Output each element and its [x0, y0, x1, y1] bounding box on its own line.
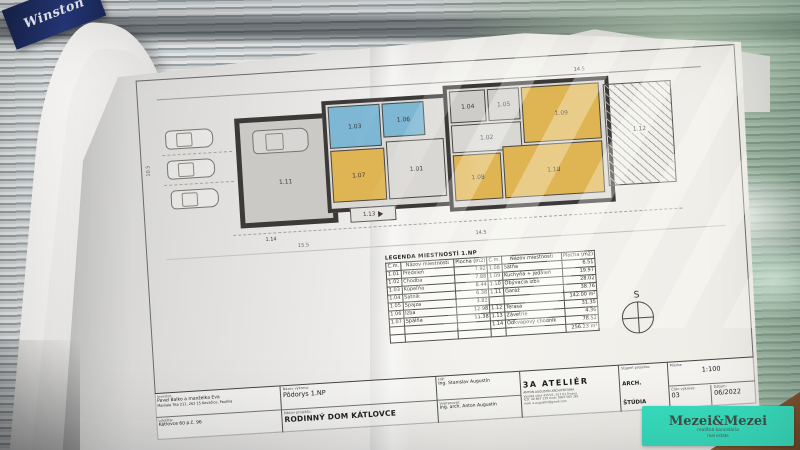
legend-cell	[390, 334, 405, 343]
legend-cell	[491, 328, 506, 337]
photo-scene: Winston 14.5 10.5 1.11	[0, 0, 800, 450]
car-icon	[252, 127, 309, 154]
watermark-subtitle: real estate	[707, 433, 728, 438]
car-icon	[170, 188, 219, 210]
drawing-date: 06/2022	[714, 386, 752, 396]
title-block-people: HIP: Ing. Stanislav Augustín Vypracoval:…	[435, 372, 522, 423]
legend-cell	[458, 329, 491, 339]
dimension-label: 10.5	[145, 165, 152, 176]
title-block-stage: Stupeň projektu: ARCH. ŠTÚDIA	[618, 363, 669, 412]
room-label: 1.14	[265, 236, 276, 243]
corner-shadow	[0, 340, 80, 450]
drawing-number: 03	[671, 389, 709, 399]
room-label: 1.11	[279, 178, 293, 186]
cigarette-pack-label: Winston	[22, 0, 87, 31]
car-icon	[165, 128, 214, 150]
watermark-badge: Mezei&Mezei realitná kancelária real est…	[642, 406, 794, 446]
dimension-label: 15.5	[298, 242, 309, 249]
title-block-meta: Mierka: 1:100 Číslo výkresu: 03 Dátum: 0…	[667, 357, 757, 408]
blueprint-sheet: 14.5 10.5 1.11 1.03 1.06	[62, 20, 762, 450]
field-label: Stupeň projektu:	[621, 364, 665, 371]
title-block-logo: 3A ATELIÉR ANTON AUGUSTÍN ARCHITEKTÚRA V…	[519, 366, 621, 418]
car-icon	[167, 158, 216, 180]
watermark-brand: Mezei&Mezei	[669, 415, 767, 428]
sunlight-streaks	[356, 20, 762, 328]
stage-value: ARCH. ŠTÚDIA	[622, 380, 647, 406]
title-block-investor: Investor: Pavel Balko a manželka Eva Mar…	[155, 386, 283, 440]
title-block-names: Názov výkresu: Pôdorys 1.NP Názov projek…	[279, 377, 437, 432]
